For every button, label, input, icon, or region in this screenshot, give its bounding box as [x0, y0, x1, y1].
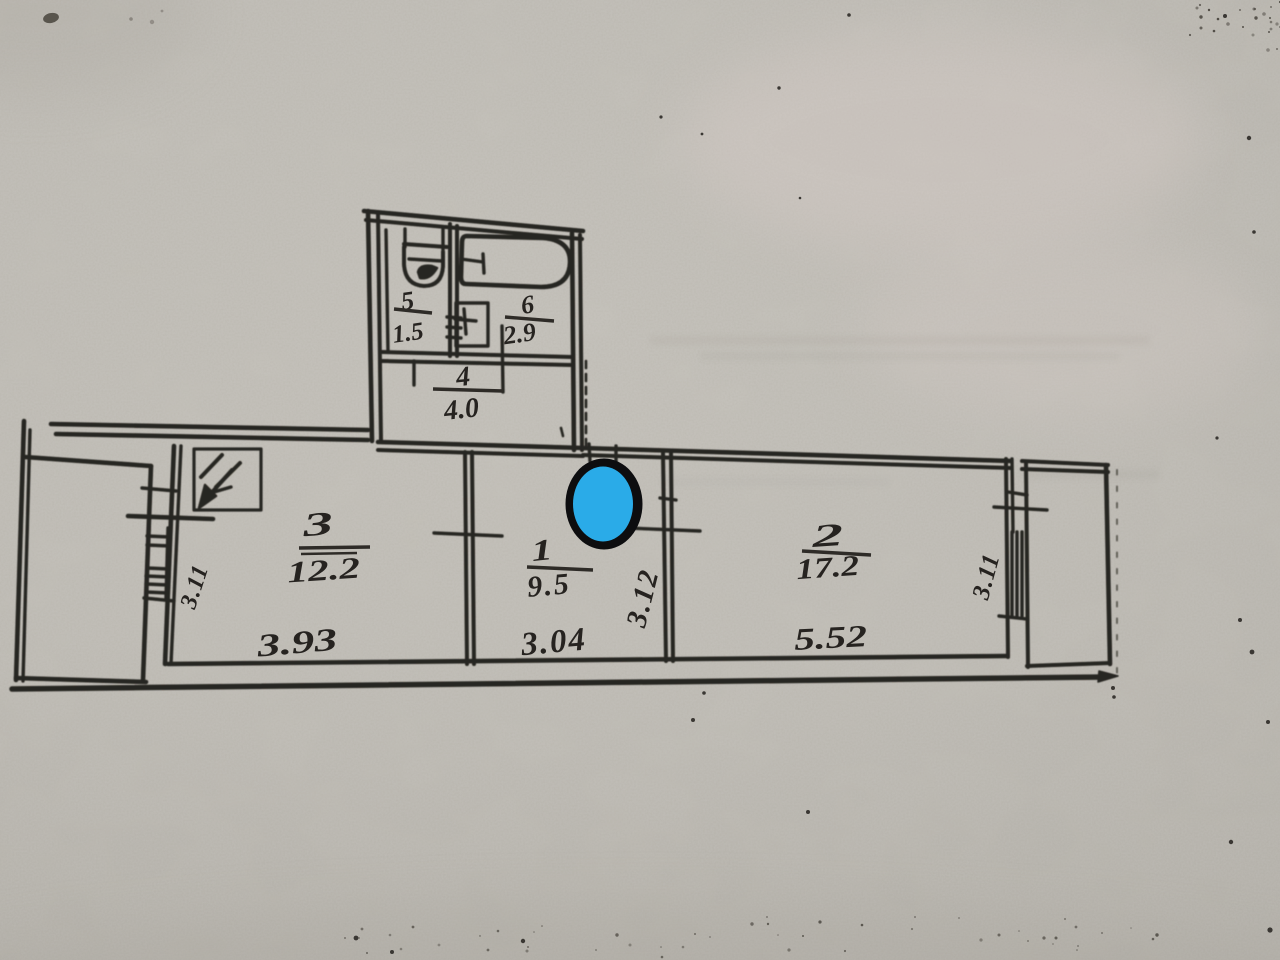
svg-text:12.2: 12.2 — [286, 552, 361, 590]
svg-text:3: 3 — [300, 506, 335, 545]
svg-text:5.52: 5.52 — [793, 618, 868, 657]
svg-text:3.93: 3.93 — [254, 621, 338, 664]
svg-text:17.2: 17.2 — [795, 550, 860, 586]
svg-text:2.9: 2.9 — [500, 317, 537, 350]
svg-text:1.5: 1.5 — [391, 318, 426, 349]
svg-text:1: 1 — [530, 533, 554, 568]
svg-text:2: 2 — [809, 516, 844, 554]
svg-text:4.0: 4.0 — [441, 392, 480, 427]
svg-text:3.04: 3.04 — [519, 621, 589, 663]
svg-text:9.5: 9.5 — [526, 567, 572, 604]
